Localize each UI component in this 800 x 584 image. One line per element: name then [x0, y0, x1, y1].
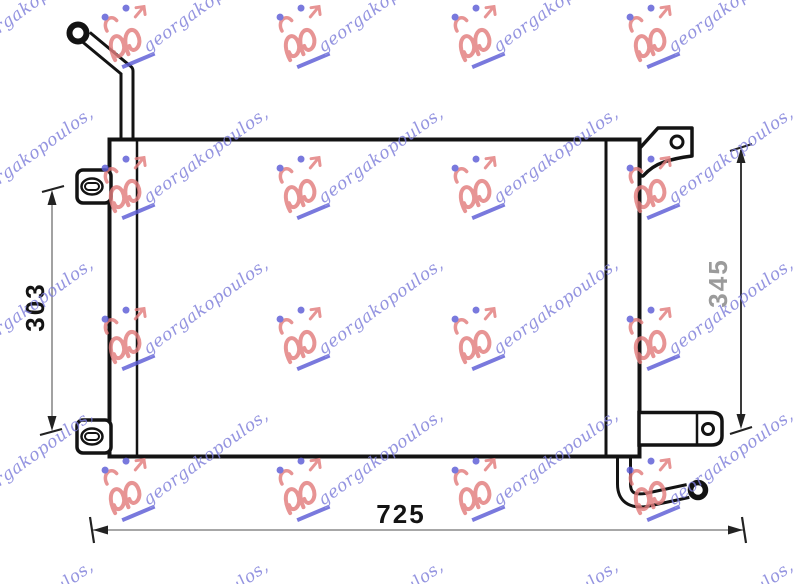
dimension-tick-bottom	[40, 429, 62, 435]
bracket-body	[640, 128, 692, 176]
dimension-label-bottom: 725	[376, 499, 425, 529]
radiator-technical-drawing: 303 725 345	[0, 0, 800, 584]
mounting-bracket-top-left	[77, 170, 111, 203]
inlet-pipe-top-left	[70, 25, 128, 144]
parts-diagram-page: 303 725 345	[0, 0, 800, 584]
inlet-ring-fitting-icon	[70, 25, 87, 42]
dimension-tick-top	[42, 186, 64, 192]
mounting-bracket-bottom-left	[77, 420, 111, 453]
arrow-up-icon	[737, 148, 746, 163]
radiator-body	[110, 140, 640, 457]
outlet-ring-fitting-icon	[691, 483, 706, 498]
dimension-right-height: 345	[703, 144, 752, 434]
mounting-bracket-top-right	[640, 128, 692, 176]
bracket-hole-icon	[703, 424, 714, 435]
mounting-bracket-bottom-right	[639, 413, 722, 446]
bracket-hole-icon	[671, 136, 683, 148]
dimension-label-right: 345	[703, 258, 733, 307]
radiator-core-outline	[110, 140, 640, 457]
arrow-left-icon	[93, 526, 108, 535]
arrow-right-icon	[728, 526, 743, 535]
arrow-down-icon	[737, 414, 746, 429]
dimension-label-left: 303	[20, 282, 50, 331]
dimension-left-height: 303	[20, 186, 64, 435]
arrow-up-icon	[48, 190, 57, 205]
arrow-down-icon	[48, 416, 57, 431]
